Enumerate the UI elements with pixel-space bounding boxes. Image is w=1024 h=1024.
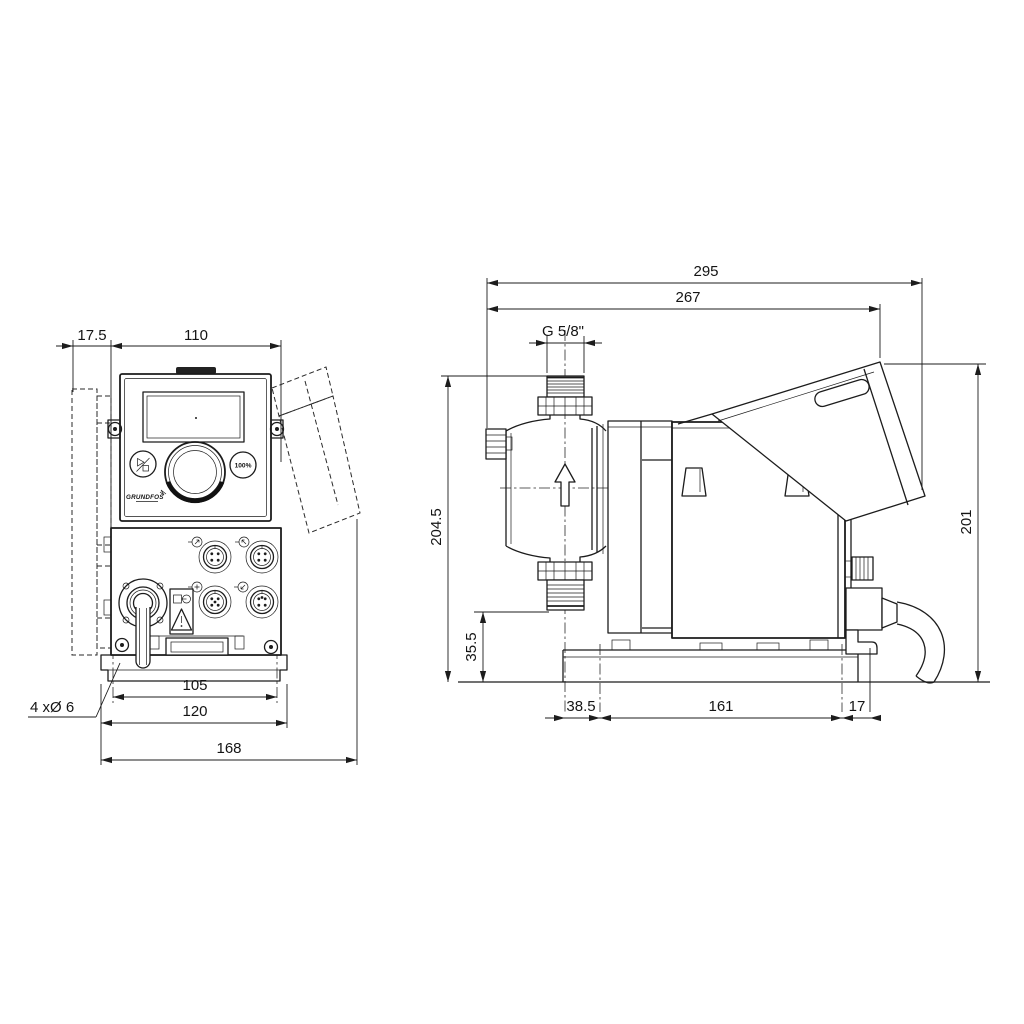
screw-icon xyxy=(271,423,284,436)
side-view: 295 267 G 5/8" 204.5 xyxy=(428,263,990,721)
hood-open-position-hidden-outline xyxy=(272,367,360,533)
vent-valve-icon xyxy=(486,429,512,459)
pump-lantern-side xyxy=(608,421,672,633)
front-view: 100% GRUNDFOS 17.5 110 xyxy=(28,327,360,765)
dim-text: 295 xyxy=(693,263,718,280)
dimension-height-204-5: 204.5 xyxy=(428,376,556,682)
suction-connection-thread xyxy=(547,580,584,610)
cable-connector-block xyxy=(846,588,882,630)
dimension-overall-height-201: 201 xyxy=(884,364,986,682)
dim-text: 201 xyxy=(958,509,975,534)
power-cable xyxy=(897,602,944,683)
rear-connections xyxy=(845,557,944,683)
hole-callout: 4 xØ 6 xyxy=(28,663,120,717)
suction-union-nut xyxy=(538,562,592,580)
hundred-percent-label: 100% xyxy=(235,463,252,470)
dim-text: 105 xyxy=(182,677,207,694)
technical-drawing: 100% GRUNDFOS 17.5 110 xyxy=(0,0,1024,1024)
dim-text: 204.5 xyxy=(428,508,445,546)
dim-text: 168 xyxy=(216,740,241,757)
dim-text: 17 xyxy=(849,698,866,715)
discharge-union-nut xyxy=(538,397,592,415)
hole-note-text: 4 xØ 6 xyxy=(30,699,74,716)
mains-cable xyxy=(136,607,150,668)
dim-text: 35.5 xyxy=(463,632,480,661)
drawing-canvas: 100% GRUNDFOS 17.5 110 xyxy=(0,0,1024,1024)
cable-strain-relief xyxy=(882,598,897,628)
dimension-offset-17-5: 17.5 xyxy=(56,327,130,528)
dim-text: 267 xyxy=(675,289,700,306)
top-tab xyxy=(176,367,216,374)
m12-connector-icon xyxy=(199,586,231,618)
dimension-bottom-chain: 38.5 161 17 xyxy=(545,648,881,721)
dim-text: G 5/8" xyxy=(542,323,584,340)
dim-text: 17.5 xyxy=(77,327,106,344)
flow-direction-arrow-icon xyxy=(555,464,575,506)
label-plate xyxy=(170,589,193,634)
rear-threaded-stub xyxy=(852,557,873,580)
dosing-head-side xyxy=(486,376,606,610)
svg-text:GRUNDFOS: GRUNDFOS xyxy=(126,494,164,501)
rear-bracket xyxy=(846,630,877,654)
discharge-connection-thread xyxy=(547,376,584,397)
dim-text: 120 xyxy=(182,703,207,720)
dimension-suction-height-35-5: 35.5 xyxy=(463,612,549,682)
mounting-clip xyxy=(682,468,706,496)
mounting-plate-front xyxy=(101,648,287,703)
control-cube-front: 100% GRUNDFOS xyxy=(108,367,284,521)
dim-text: 38.5 xyxy=(566,698,595,715)
dim-text: 110 xyxy=(184,327,208,344)
dim-text: 161 xyxy=(708,698,733,715)
dimension-thread-g58: G 5/8" xyxy=(529,323,602,373)
dimension-plate-width-120: 120 xyxy=(101,684,287,765)
